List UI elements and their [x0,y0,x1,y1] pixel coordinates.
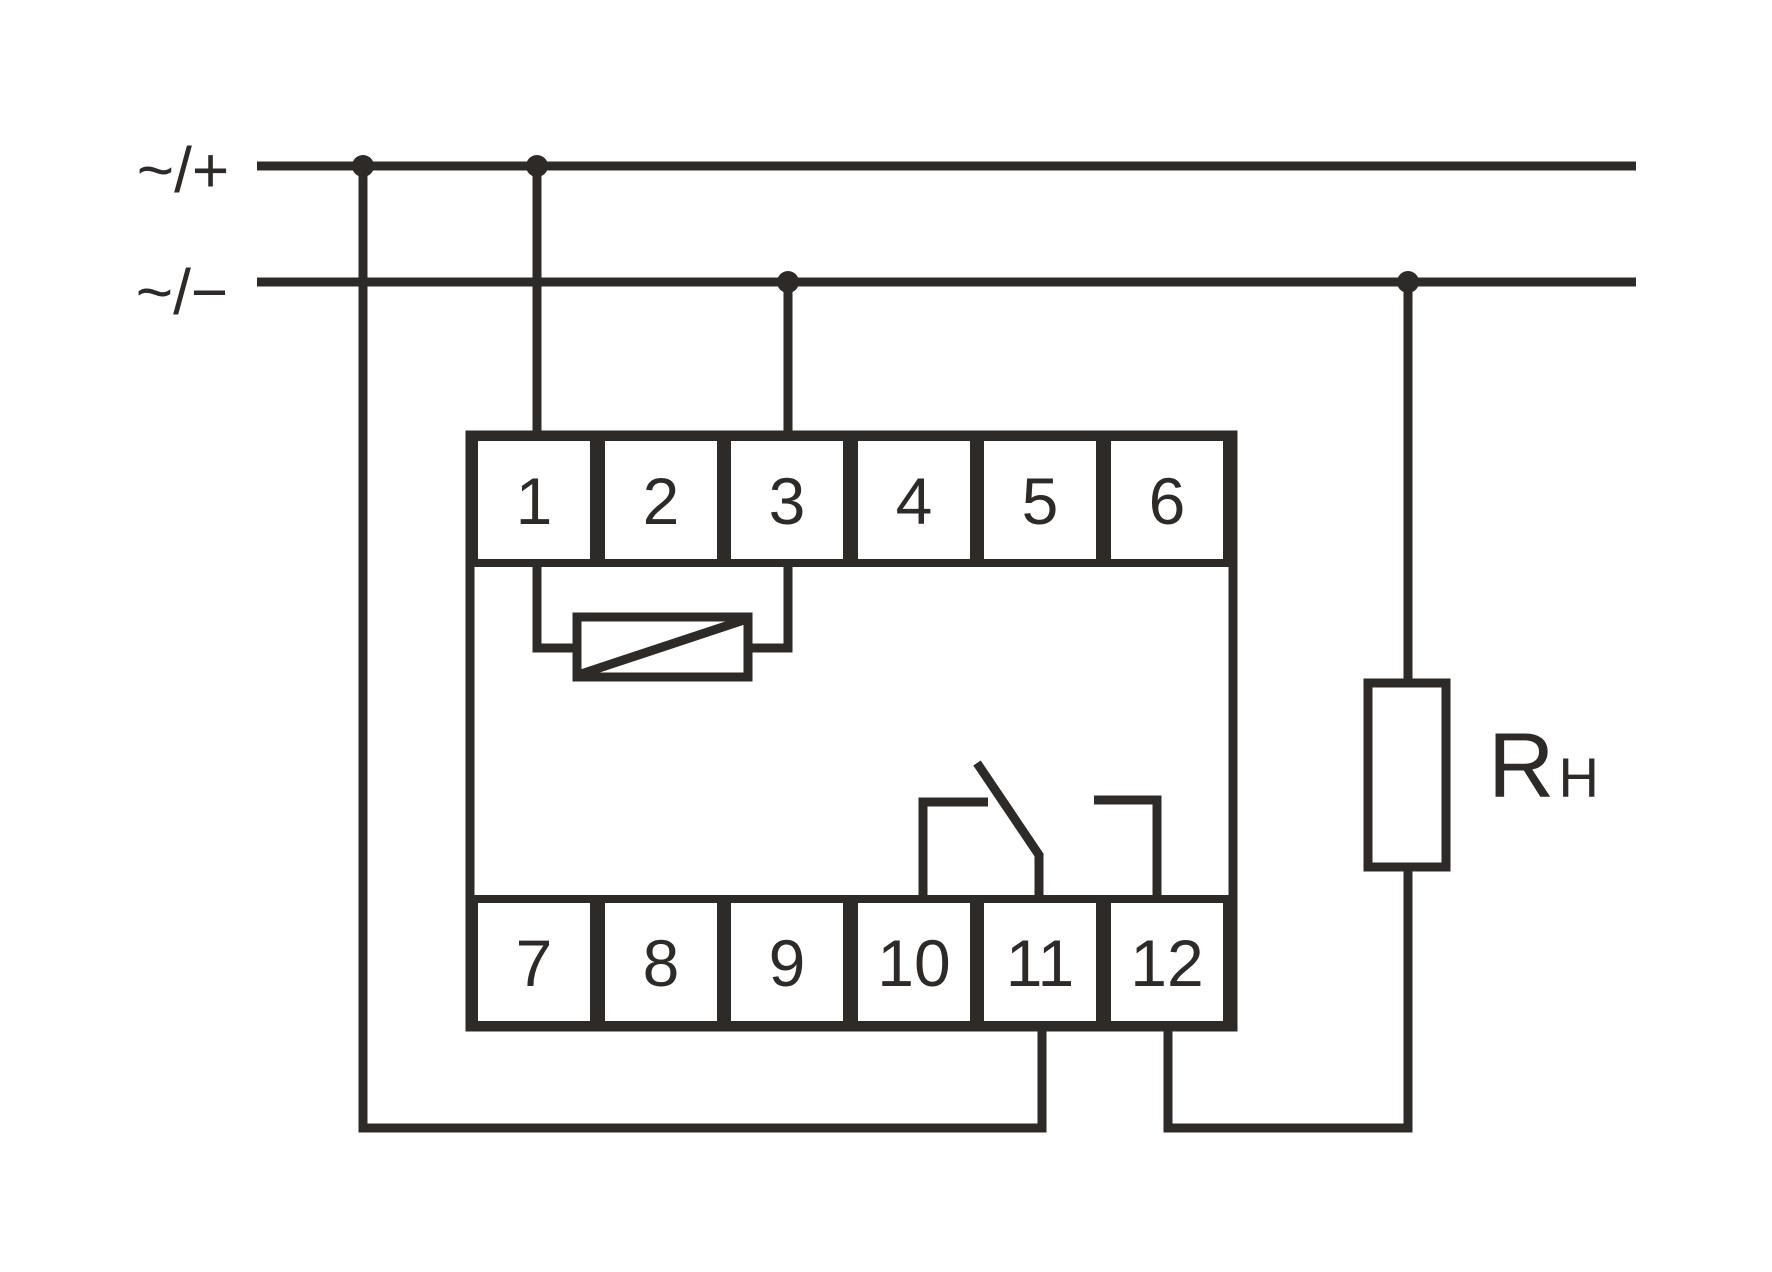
contact-blade [977,763,1039,899]
junction-dots [352,155,1419,293]
bottom-rail-label: ~/− [136,256,229,328]
terminal-number: 8 [643,926,680,1000]
terminal-number: 9 [769,926,806,1000]
junction-dot [526,155,548,177]
terminal-number: 7 [516,926,553,1000]
terminal-number: 5 [1022,464,1059,538]
load-resistor: RH [1368,683,1599,867]
wiring-diagram-canvas: ~/+ ~/− [0,0,1772,1272]
junction-dot [352,155,374,177]
terminal-row-bottom: 7 8 9 10 11 12 [474,899,1227,1025]
contact-fixed-right [1094,800,1157,899]
changeover-contact-symbol [923,763,1157,899]
diagram-page: ~/+ ~/− [0,0,1772,1272]
contact-fixed-left [923,802,988,899]
terminal-number: 6 [1149,464,1186,538]
top-rail-label: ~/+ [137,134,230,206]
terminal-number: 1 [516,464,553,538]
load-resistor-label: RH [1488,715,1599,817]
terminal-number: 10 [877,926,950,1000]
coil-lead-left [537,563,577,648]
terminal-number: 4 [896,464,933,538]
device-box: 1 2 3 4 5 6 7 8 9 10 11 12 [470,435,1233,1027]
resistor-body [1368,683,1446,867]
junction-dot [777,271,799,293]
junction-dot [1397,271,1419,293]
coil-symbol [537,563,788,677]
terminal-row-top: 1 2 3 4 5 6 [474,437,1227,563]
terminal-number: 2 [643,464,680,538]
terminal-number: 3 [769,464,806,538]
terminal-number: 12 [1130,926,1203,1000]
coil-lead-right [748,563,788,648]
terminal-number: 11 [1006,926,1075,1000]
